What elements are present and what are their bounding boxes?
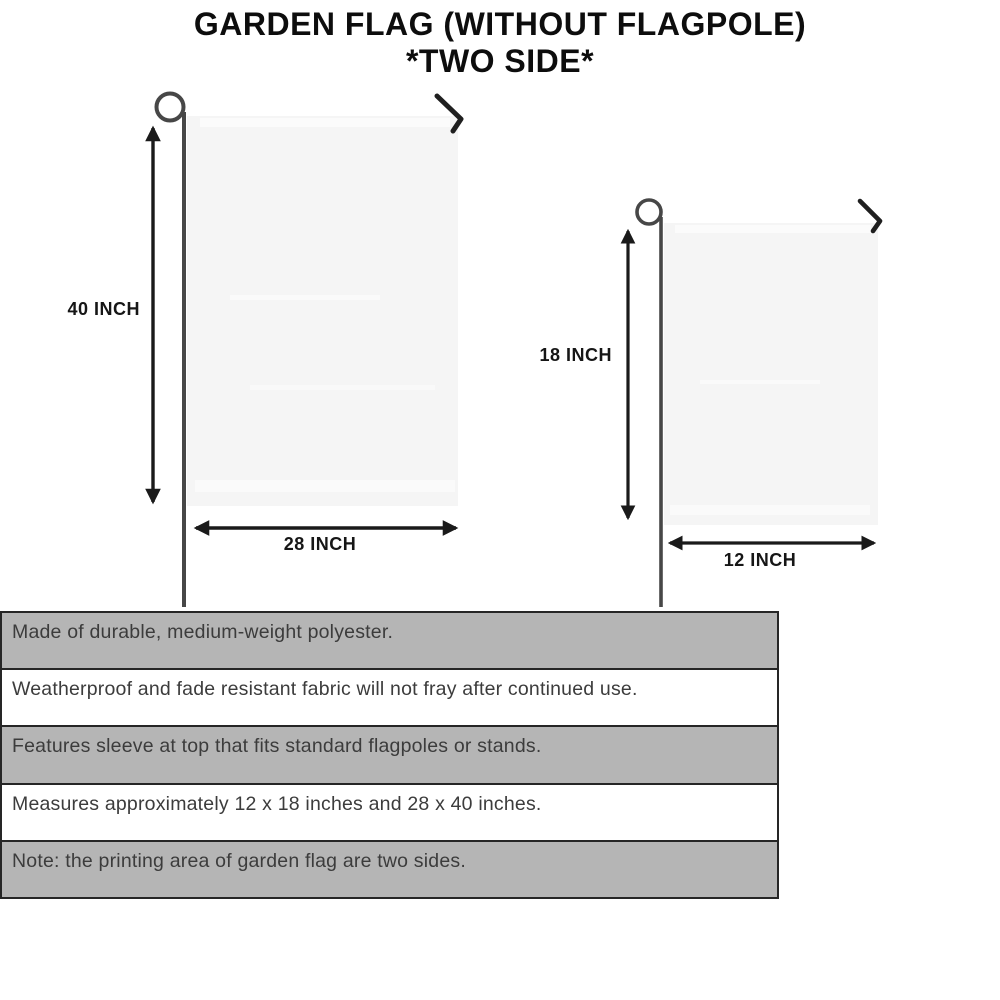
large-flag-width-label: 28 INCH (240, 534, 400, 555)
small-flag-pole-loop (637, 200, 661, 224)
feature-row-sleeve: Features sleeve at top that fits standar… (2, 727, 777, 784)
large-flag (153, 94, 461, 608)
small-flag (628, 200, 880, 607)
feature-list: Made of durable, medium-weight polyester… (0, 611, 779, 899)
feature-row-material: Made of durable, medium-weight polyester… (2, 613, 777, 670)
large-flag-fabric (187, 116, 458, 506)
feature-row-note: Note: the printing area of garden flag a… (2, 842, 777, 897)
large-flag-pole-loop (157, 94, 184, 121)
small-flag-height-label: 18 INCH (508, 345, 612, 366)
small-flag-width-label: 12 INCH (680, 550, 840, 571)
small-flag-fabric (664, 223, 878, 525)
garden-flag-size-chart: { "title": { "line1": "GARDEN FLAG (WITH… (0, 0, 1000, 1000)
feature-row-measures: Measures approximately 12 x 18 inches an… (2, 785, 777, 842)
feature-row-weatherproof: Weatherproof and fade resistant fabric w… (2, 670, 777, 727)
large-flag-height-label: 40 INCH (36, 299, 140, 320)
